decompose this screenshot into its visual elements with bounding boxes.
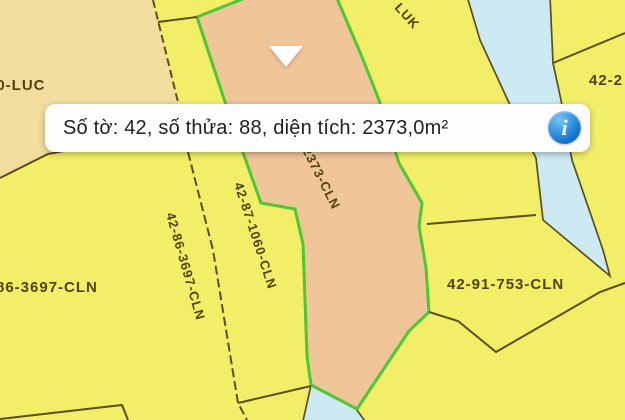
- boundary-line: [238, 386, 311, 403]
- map-canvas[interactable]: 00-LUC 86-3697-CLN 42-91-753-CLN 42-2 LU…: [0, 0, 625, 420]
- info-icon[interactable]: i: [548, 111, 581, 144]
- parcel-label-luc: 00-LUC: [0, 77, 46, 94]
- parcel-selected-2373[interactable]: [197, 0, 429, 409]
- parcel-label-42-2: 42-2: [589, 72, 623, 89]
- boundary-line: [553, 33, 625, 63]
- parcel-label-luk: LUK: [392, 0, 423, 32]
- boundary-line: [429, 283, 625, 352]
- parcel-label-753: 42-91-753-CLN: [447, 276, 564, 293]
- parcel-info-popup[interactable]: Số tờ: 42, số thửa: 88, diện tích: 2373,…: [45, 104, 590, 152]
- map-screen: 00-LUC 86-3697-CLN 42-91-753-CLN 42-2 LU…: [0, 0, 625, 420]
- boundary-line: [427, 215, 536, 224]
- parcel-label-3697-rotated: 42-86-3697-CLN: [163, 211, 208, 322]
- boundary-line: [0, 405, 128, 420]
- boundary-line: [158, 17, 197, 22]
- popup-pointer: [269, 46, 303, 67]
- parcel-info-text: Số tờ: 42, số thửa: 88, diện tích: 2373,…: [45, 117, 448, 140]
- parcel-label-3697-horizontal: 86-3697-CLN: [0, 279, 98, 296]
